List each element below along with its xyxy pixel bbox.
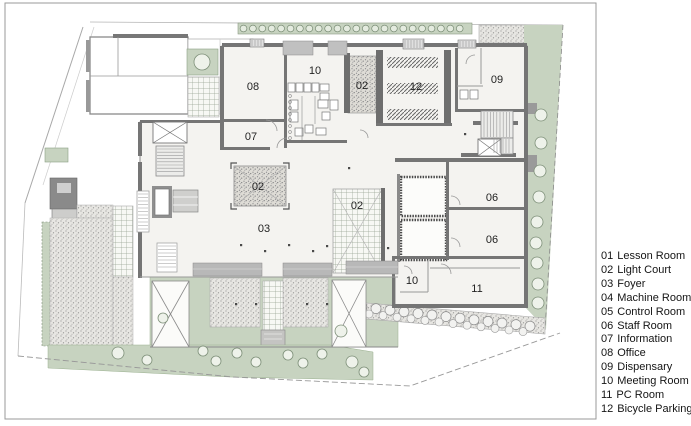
courtyard-lower (401, 220, 446, 260)
tree-icon (535, 109, 547, 121)
room-label-10: 10 (309, 65, 321, 77)
neighbor-shed (50, 178, 77, 209)
tree-icon (251, 357, 261, 367)
legend-item-04: 04Machine Room (601, 292, 691, 306)
room-label-09: 09 (491, 74, 503, 86)
legend-item-10: 10Meeting Room (601, 375, 691, 389)
floor-plan-page: 08100212090702020306061011 01Lesson Room… (0, 0, 691, 426)
garden-steps (261, 330, 285, 347)
room-label-03: 03 (258, 223, 270, 235)
tree-icon (346, 356, 358, 368)
courtyard-upper (401, 177, 446, 216)
tree-icon (534, 165, 546, 177)
tree-icon (158, 313, 168, 323)
tree-icon (335, 325, 347, 337)
gravel-ne (479, 25, 526, 43)
tree-icon (112, 347, 124, 359)
legend-item-06: 06Staff Room (601, 320, 691, 334)
legend-item-05: 05Control Room (601, 306, 691, 320)
room-label-12: 12 (410, 81, 422, 93)
grille-icon (458, 40, 476, 48)
legend-item-02: 02Light Court (601, 264, 691, 278)
entry-plaza (188, 77, 219, 117)
legend-item-08: 08Office (601, 347, 691, 361)
legend-item-09: 09Dispensary (601, 361, 691, 375)
legend-item-07: 07Information (601, 333, 691, 347)
floor-plan-drawing: 08100212090702020306061011 (0, 0, 691, 426)
room-label-06: 06 (486, 192, 498, 204)
tree-icon (198, 346, 208, 356)
green-west-strip (42, 222, 50, 346)
tree-icon (531, 216, 543, 228)
tree-icon (232, 348, 242, 358)
tree-icon (359, 367, 369, 377)
legend-item-11: 11PC Room (601, 389, 691, 403)
room-label-02: 02 (351, 200, 363, 212)
tree-icon (535, 137, 547, 149)
room-label-10: 10 (406, 275, 418, 287)
tree-icon (532, 297, 544, 309)
tree-icon (194, 54, 210, 70)
tree-icon (142, 355, 152, 365)
tree-icon (317, 349, 327, 359)
grid-path-west (113, 206, 133, 277)
legend: 01Lesson Room02Light Court03Foyer04Machi… (601, 250, 691, 417)
tree-icon (211, 356, 221, 366)
tree-icon (533, 191, 545, 203)
legend-item-03: 03Foyer (601, 278, 691, 292)
south-canopies (193, 261, 398, 276)
legend-item-12: 12Bicycle Parking (601, 403, 691, 417)
gravel-west (50, 218, 113, 346)
room-label-07: 07 (245, 131, 257, 143)
tree-icon (531, 257, 543, 269)
tree-icon (283, 350, 293, 360)
legend-list: 01Lesson Room02Light Court03Foyer04Machi… (601, 250, 691, 417)
room-label-02: 02 (252, 181, 264, 193)
room-label-02: 02 (356, 80, 368, 92)
tree-icon (530, 237, 542, 249)
grille-icon (403, 39, 424, 49)
tree-icon (298, 358, 308, 368)
room-label-11: 11 (471, 283, 482, 295)
stair-sw (157, 243, 177, 272)
room-label-06: 06 (486, 234, 498, 246)
tree-icon (532, 278, 544, 290)
legend-item-01: 01Lesson Room (601, 250, 691, 264)
room-label-08: 08 (247, 81, 259, 93)
